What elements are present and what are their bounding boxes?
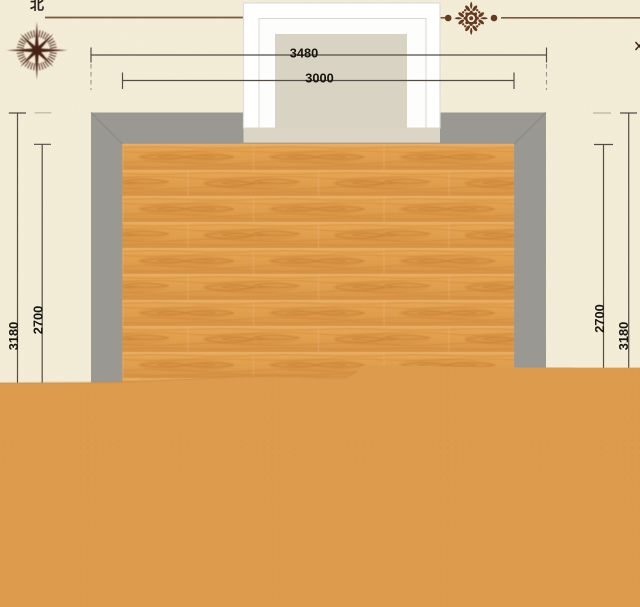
svg-text:3180: 3180 — [6, 322, 21, 350]
svg-text:北: 北 — [30, 0, 44, 13]
svg-text:2700: 2700 — [592, 304, 607, 332]
svg-text:3480: 3480 — [290, 46, 318, 61]
svg-text:2700: 2700 — [31, 306, 46, 334]
svg-text:3180: 3180 — [616, 322, 631, 350]
svg-text:3000: 3000 — [305, 71, 333, 86]
